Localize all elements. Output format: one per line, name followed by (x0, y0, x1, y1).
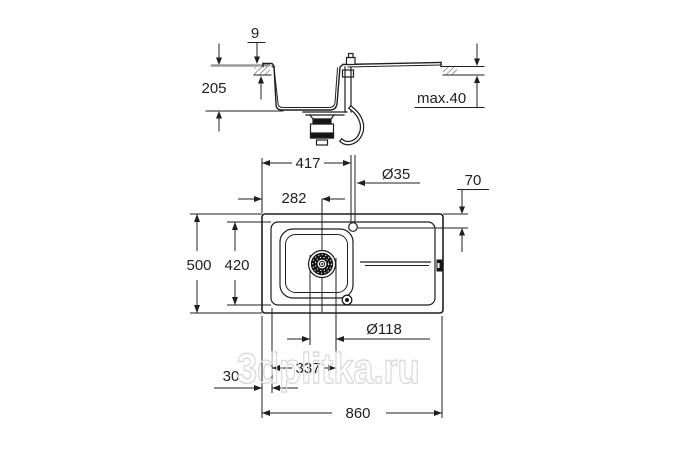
dim-label-inner-rim-depth: 420 (224, 257, 249, 274)
dim-label-overall-width: 860 (345, 405, 370, 422)
faucet-boss (347, 54, 356, 65)
dim-label-drain-offset-x: 282 (281, 190, 306, 207)
dim-label-counter-thickness: max.40 (417, 90, 466, 107)
drain-knob (342, 295, 352, 305)
dim-label-overall-depth: 500 (186, 257, 211, 274)
sink-technical-drawing: 9 205 max.40 (0, 0, 675, 450)
faucet-hole (349, 223, 358, 232)
top-view: 417 Ø35 282 70 (186, 155, 489, 422)
dim-label-edge-margin: 30 (223, 368, 240, 385)
dim-label-drain-span: 337 (295, 360, 320, 377)
dim-label-bowl-depth: 205 (201, 80, 226, 97)
dim-label-drain-dia: Ø118 (366, 321, 402, 338)
countertop-right-hatch (443, 67, 457, 76)
countertop-left-hatch (254, 67, 270, 76)
dim-label-faucet-hole-dia: Ø35 (382, 166, 410, 183)
drawing-canvas: 9 205 max.40 (0, 0, 675, 450)
section-view: 9 205 max.40 (201, 25, 484, 145)
dim-label-faucet-offset-y: 70 (465, 172, 482, 189)
dim-faucet-offset-y (457, 190, 489, 253)
dim-edge-margin (214, 385, 298, 391)
overflow-clip (437, 260, 443, 272)
dim-drain-dia (287, 336, 430, 342)
drain (309, 251, 336, 278)
dim-label-faucet-offset-x: 417 (295, 155, 320, 172)
dim-label-rim-height: 9 (251, 25, 259, 42)
drain-assembly (303, 67, 362, 145)
